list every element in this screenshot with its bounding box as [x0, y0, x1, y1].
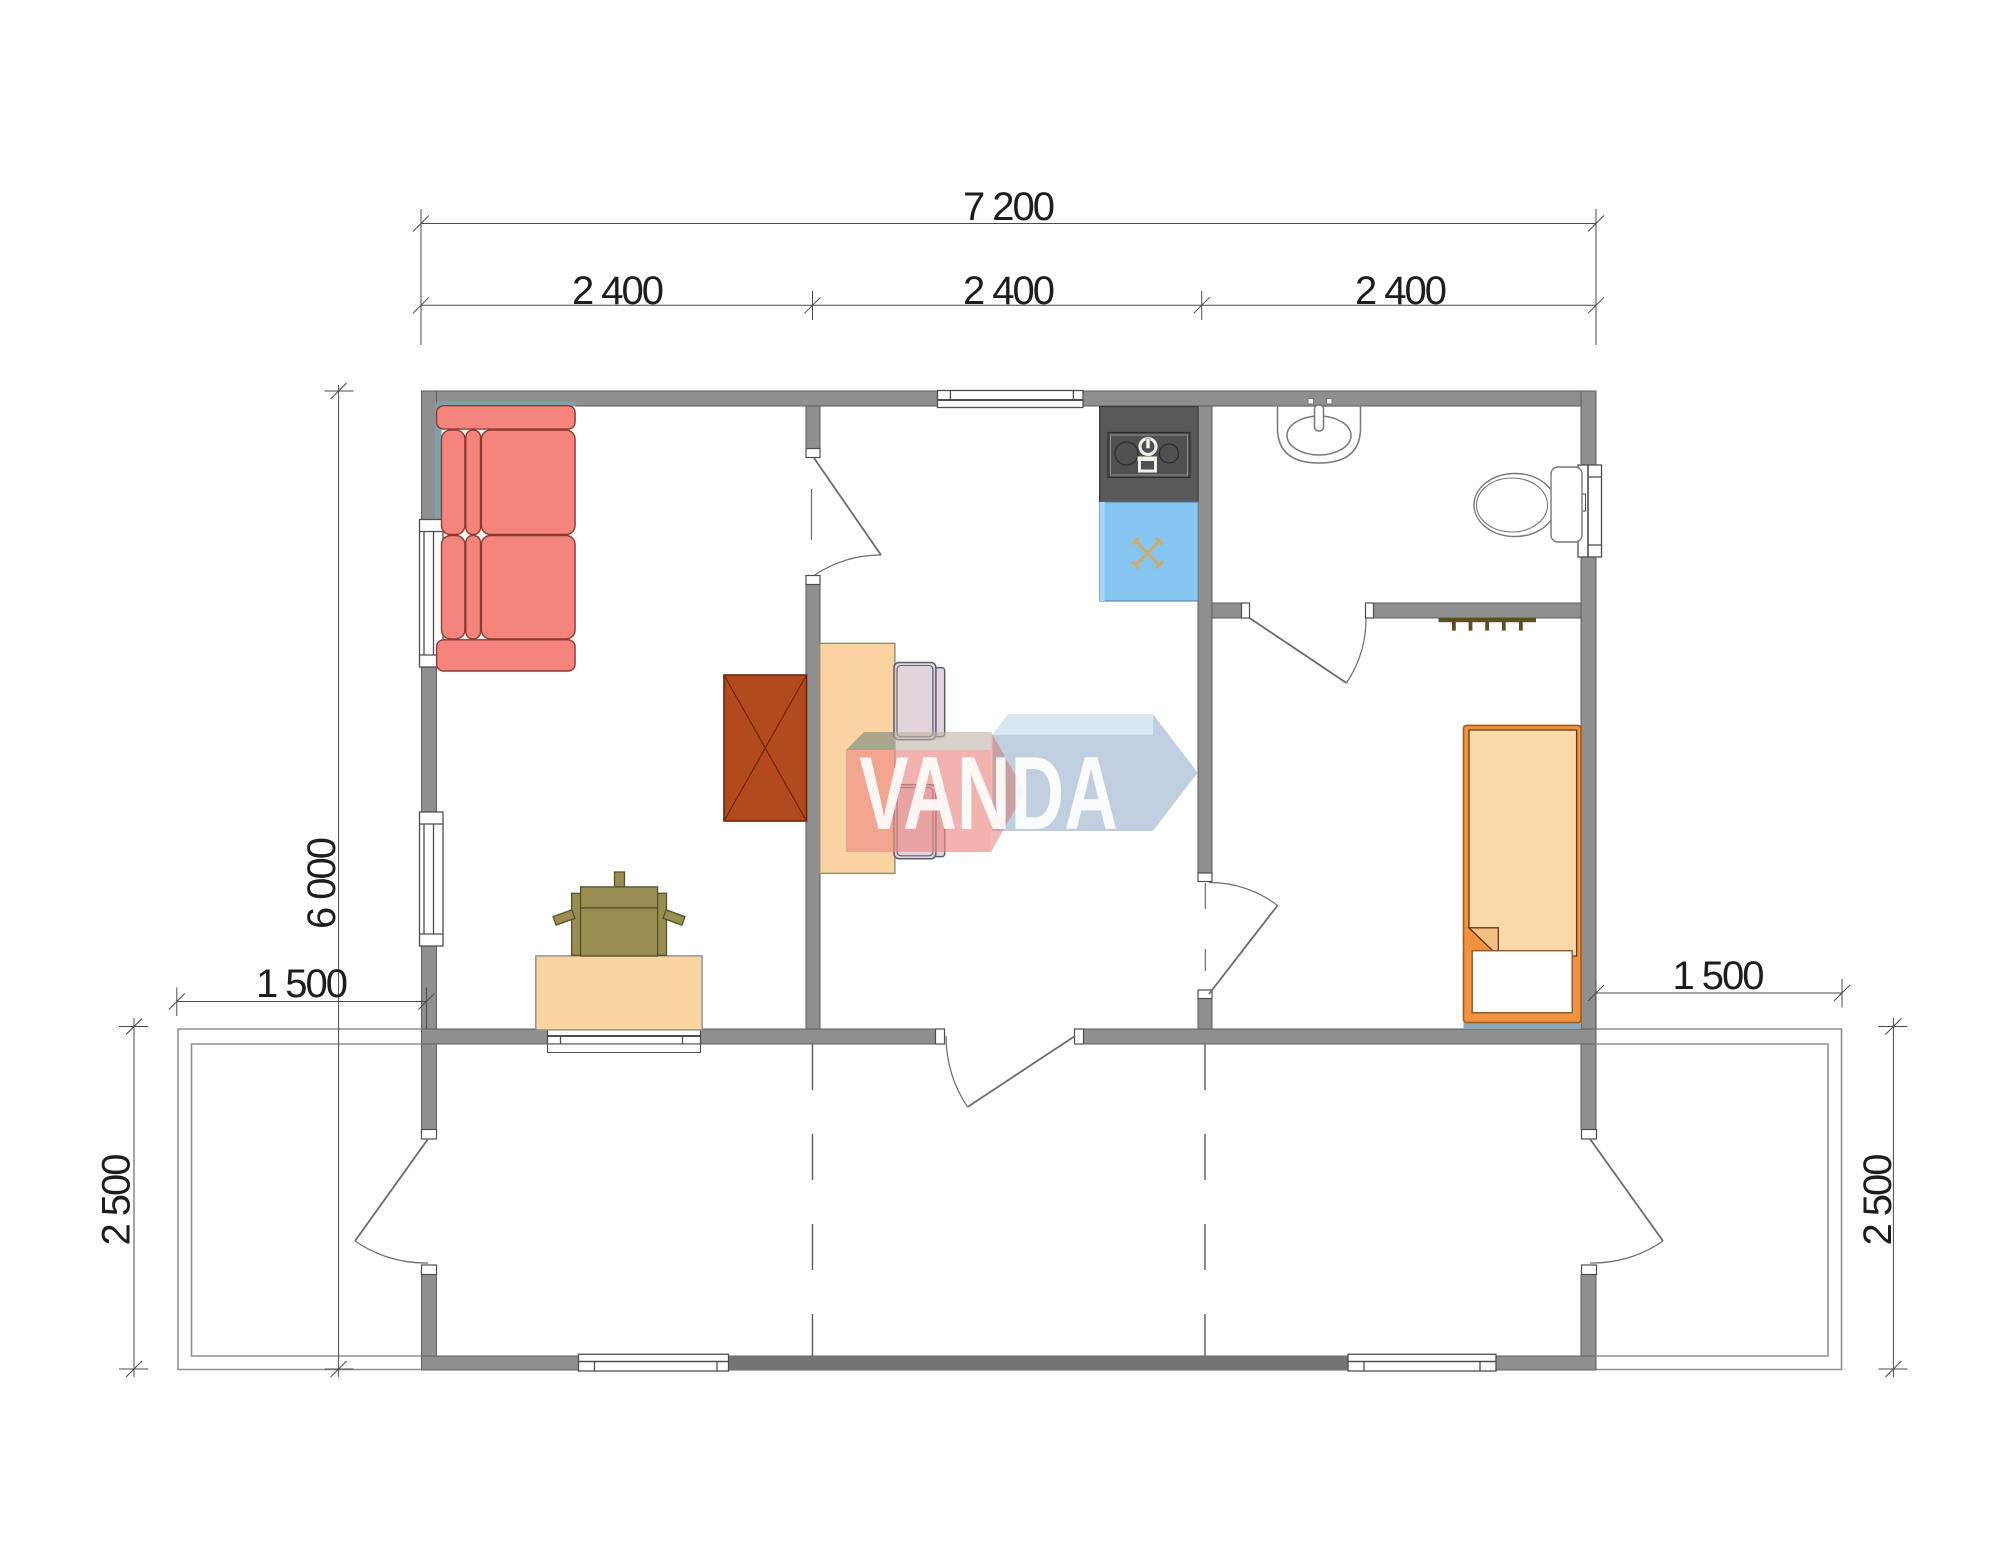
svg-text:2 400: 2 400: [963, 269, 1054, 313]
svg-text:7 200: 7 200: [963, 185, 1054, 229]
svg-text:2 500: 2 500: [1856, 1155, 1900, 1246]
svg-text:1 500: 1 500: [1672, 954, 1763, 998]
svg-text:6 000: 6 000: [300, 838, 344, 929]
svg-text:1 500: 1 500: [256, 962, 347, 1006]
svg-text:2 400: 2 400: [1355, 269, 1446, 313]
svg-text:2 500: 2 500: [95, 1155, 139, 1246]
svg-text:2 400: 2 400: [572, 269, 663, 313]
svg-text:VANDA: VANDA: [859, 736, 1118, 852]
